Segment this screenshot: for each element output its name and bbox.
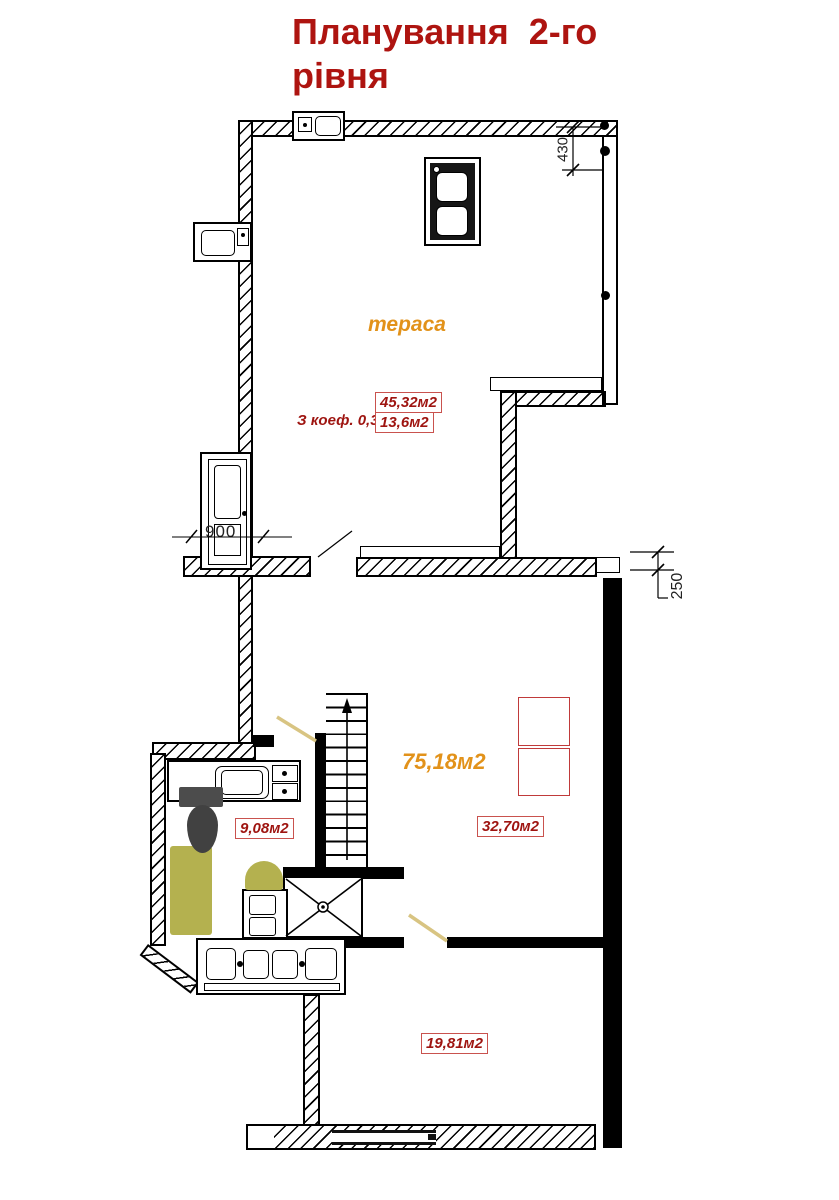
bottom-window [332,1130,436,1145]
wardrobe-bottom [518,748,570,796]
bay-window-unit-4 [305,948,337,980]
ac-left-control-box [237,228,249,246]
shower-cabin [283,876,363,938]
terrace-area-coef-badge: 13,6м2 [375,412,434,433]
vent-duct-bottom [436,206,468,236]
terrace-lower-ledge [360,546,500,558]
ac-left-fan-housing [201,230,235,256]
toilet-bowl [187,805,218,853]
right-wall [603,578,622,1148]
wardrobe-top [518,697,570,746]
hall-left-wall [238,575,253,745]
faucet-dot-bottom [282,789,287,794]
hall-door-stub-wall [253,735,274,747]
page-title-line1: Планування 2-го [292,10,597,54]
floor-plan: Планування 2-го рівня [0,0,839,1200]
bay-sill [204,983,340,991]
ac-top-fan-housing [315,116,341,136]
bathroom-area-badge: 9,08м2 [235,818,294,839]
ac-top-control-dot [303,123,307,127]
door-panel-top [214,465,241,519]
bathroom-top-wall [152,742,256,760]
plan-linework [0,0,839,1200]
ac-left-control-dot [241,233,245,237]
stair-left-wall [315,733,326,869]
terrace-step-wall-vertical [500,391,517,563]
bath-cabinet [242,889,288,939]
terrace-railing [602,135,618,405]
right-room-area-badge: 32,70м2 [477,816,544,837]
cabinet-pane-bottom [249,917,276,936]
bathtub [170,846,212,935]
pedestal-sink [245,861,283,890]
dim900-tick-right [258,530,269,543]
door-width-dimension: 900 [205,522,236,542]
bottom-room-area-badge: 19,81м2 [421,1033,488,1054]
bay-corner-diagonal-wall [140,944,200,994]
faucet-dot-top [282,771,287,776]
bottom-wall-sill [248,1126,274,1148]
opening-leader-line [318,531,352,557]
wall-end-cap [596,557,620,573]
dim900-tick-left [186,530,197,543]
terrace-step-ledge [490,377,602,391]
railing-post-top [600,121,609,130]
bathroom-left-wall [150,753,166,946]
cabinet-pane-top [249,895,276,915]
window-bay [196,938,346,995]
bay-window-unit-1 [206,948,236,980]
railing-post-mid [601,291,610,300]
bottom-window-end-cap [428,1134,436,1140]
terrace-label: тераса [368,313,446,337]
vent-dot [433,166,440,173]
vent-chimney-block [424,157,481,246]
page-title: Планування 2-го рівня [292,10,597,98]
room-divider-wall-right [447,937,605,948]
terrace-area-total-badge: 45,32м2 [375,392,442,413]
bay-handle-1 [237,961,243,967]
vent-duct-top [436,172,468,202]
terrace-door: 900 [200,452,252,570]
page-title-line2: рівня [292,54,597,98]
door-leaf-room [409,915,447,941]
ac-unit-left [193,222,252,262]
bay-handle-2 [299,961,305,967]
terrace-bottom-center-wall [356,557,597,577]
dim250-text: 250 [669,564,687,608]
door-knob [242,511,247,516]
dim250-tick-bottom [652,564,664,576]
sink-basin [221,770,263,795]
bay-lower-wall [303,994,320,1128]
toilet-tank [179,787,223,807]
staircase [326,693,368,869]
dim250-tick-top [652,546,664,558]
bay-window-unit-3 [272,950,298,979]
door-leaf-hall [277,717,316,741]
hall-area-label: 75,18м2 [402,749,486,775]
bay-window-unit-2 [243,950,269,979]
railing-post-upper [600,146,610,156]
dim430-text: 430 [555,128,572,172]
ac-unit-top [292,111,345,141]
